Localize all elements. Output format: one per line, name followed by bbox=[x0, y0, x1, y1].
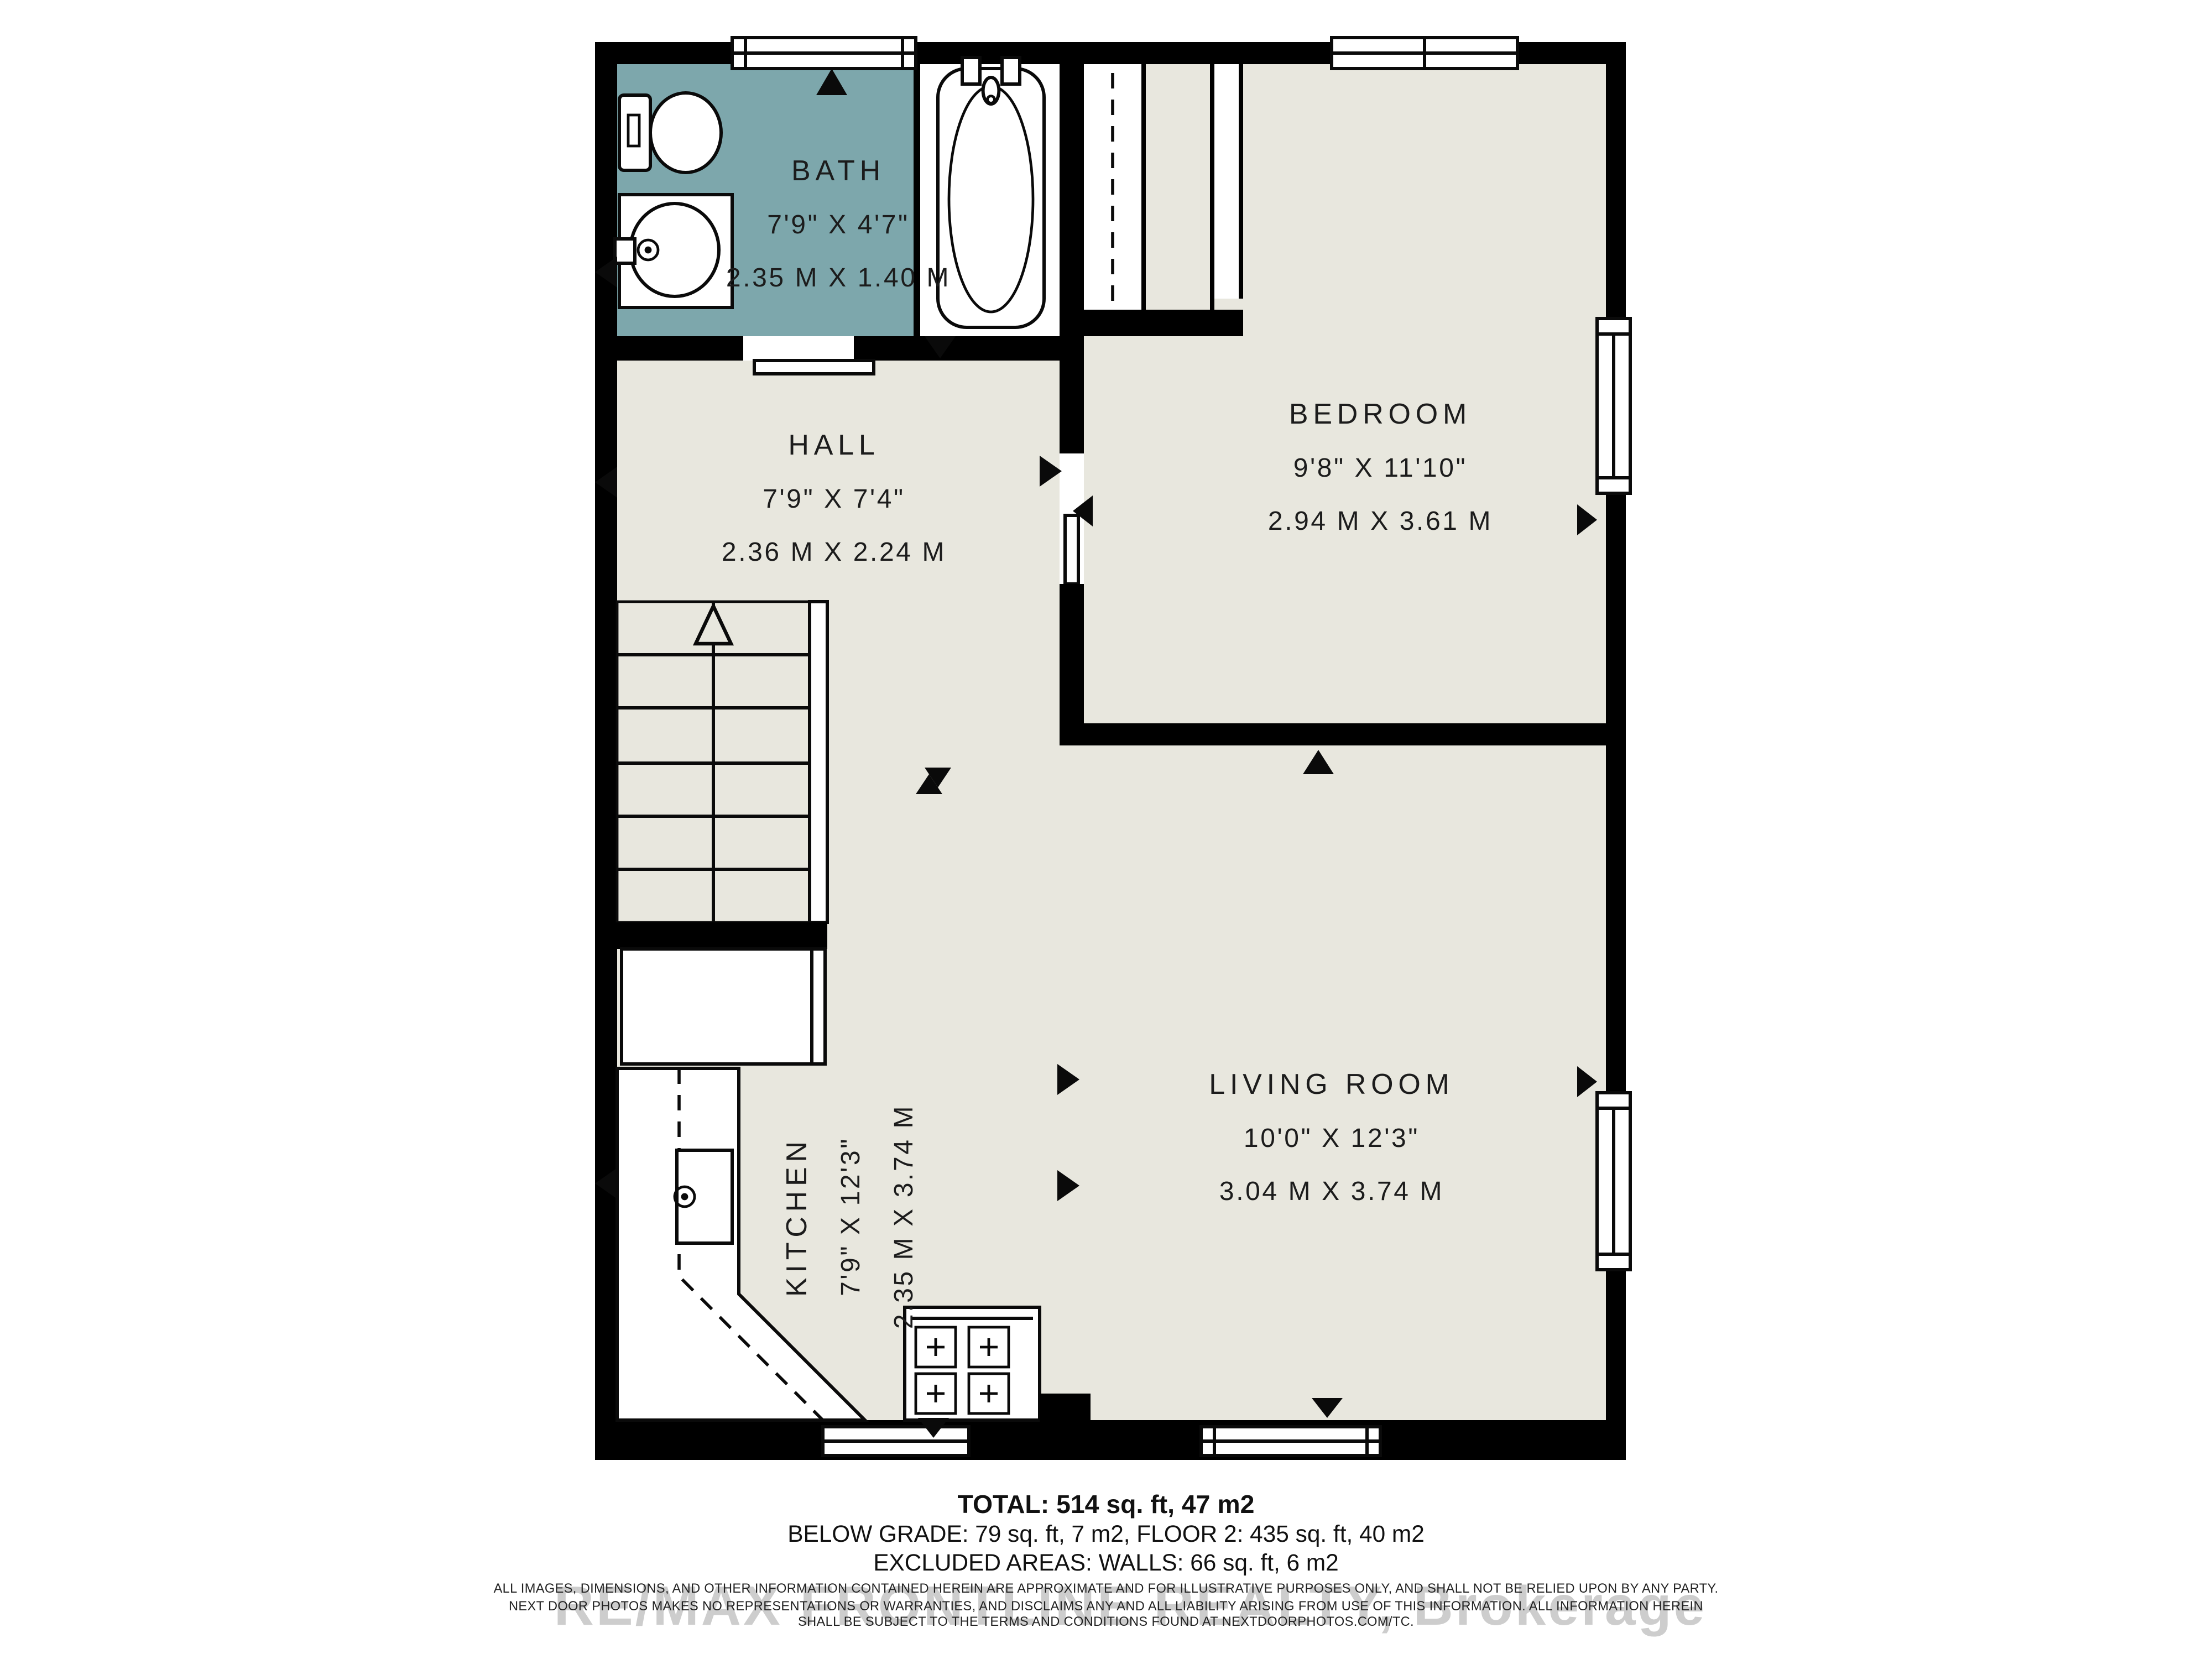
room-dim-imperial: 7'9" X 12'3" bbox=[824, 1104, 877, 1329]
window-right-living bbox=[1597, 1093, 1630, 1270]
excluded-areas-text: EXCLUDED AREAS: WALLS: 66 sq. ft, 6 m2 bbox=[0, 1551, 2212, 1577]
room-dim-metric: 2.35 M X 1.40 M bbox=[726, 251, 951, 304]
room-name: LIVING ROOM bbox=[1209, 1056, 1454, 1112]
bedroom-door-leaf bbox=[1065, 515, 1078, 584]
room-dim-imperial: 10'0" X 12'3" bbox=[1209, 1112, 1454, 1165]
window-bottom-kitchen bbox=[823, 1427, 969, 1455]
area-breakdown-text: BELOW GRADE: 79 sq. ft, 7 m2, FLOOR 2: 4… bbox=[0, 1522, 2212, 1548]
bath-door-opening bbox=[743, 336, 854, 361]
room-name: KITCHEN bbox=[769, 1104, 824, 1329]
closet-door-opening bbox=[1214, 64, 1239, 299]
room-dim-imperial: 7'9" X 4'7" bbox=[726, 198, 951, 251]
window-right-bedroom bbox=[1597, 319, 1630, 493]
kitchen-label: KITCHEN 7'9" X 12'3" 2.35 M X 3.74 M bbox=[769, 1104, 930, 1329]
room-dim-imperial: 7'9" X 7'4" bbox=[722, 472, 946, 525]
disclaimer-line-2: NEXT DOOR PHOTOS MAKES NO REPRESENTATION… bbox=[0, 1600, 2212, 1614]
room-dim-imperial: 9'8" X 11'10" bbox=[1268, 441, 1493, 494]
room-dim-metric: 2.36 M X 2.24 M bbox=[722, 525, 946, 578]
window-bottom-living bbox=[1201, 1427, 1380, 1455]
room-dim-metric: 3.04 M X 3.74 M bbox=[1209, 1165, 1454, 1218]
bath-label: BATH 7'9" X 4'7" 2.35 M X 1.40 M bbox=[726, 143, 951, 304]
window-top-bath bbox=[732, 38, 916, 69]
room-dim-metric: 2.35 M X 3.74 M bbox=[877, 1104, 930, 1329]
bathroom-sink-icon bbox=[615, 195, 732, 307]
hall-label: HALL 7'9" X 7'4" 2.36 M X 2.24 M bbox=[722, 417, 946, 578]
kitchen-wall-stub bbox=[1040, 1394, 1091, 1460]
bedroom-wall bbox=[1060, 42, 1084, 745]
bathtub-icon bbox=[938, 58, 1044, 327]
refrigerator-icon bbox=[622, 949, 825, 1064]
bedroom-label: BEDROOM 9'8" X 11'10" 2.94 M X 3.61 M bbox=[1268, 386, 1493, 547]
toilet-icon bbox=[619, 93, 721, 173]
room-name: HALL bbox=[722, 417, 946, 472]
floor-plan-page: BATH 7'9" X 4'7" 2.35 M X 1.40 M HALL 7'… bbox=[0, 0, 2212, 1659]
bath-door-leaf bbox=[754, 361, 874, 374]
room-name: BATH bbox=[726, 143, 951, 198]
room-name: BEDROOM bbox=[1268, 386, 1493, 441]
stair-railing bbox=[810, 602, 827, 922]
disclaimer-line-3: SHALL BE SUBJECT TO THE TERMS AND CONDIT… bbox=[0, 1617, 2212, 1630]
bedroom-living-wall bbox=[1060, 723, 1626, 745]
floor-plan-drawing bbox=[0, 0, 2212, 1659]
window-top-bedroom bbox=[1332, 38, 1517, 69]
room-dim-metric: 2.94 M X 3.61 M bbox=[1268, 494, 1493, 547]
living-room-label: LIVING ROOM 10'0" X 12'3" 3.04 M X 3.74 … bbox=[1209, 1056, 1454, 1218]
disclaimer-line-1: ALL IMAGES, DIMENSIONS, AND OTHER INFORM… bbox=[0, 1584, 2212, 1597]
total-area-text: TOTAL: 514 sq. ft, 47 m2 bbox=[0, 1491, 2212, 1520]
